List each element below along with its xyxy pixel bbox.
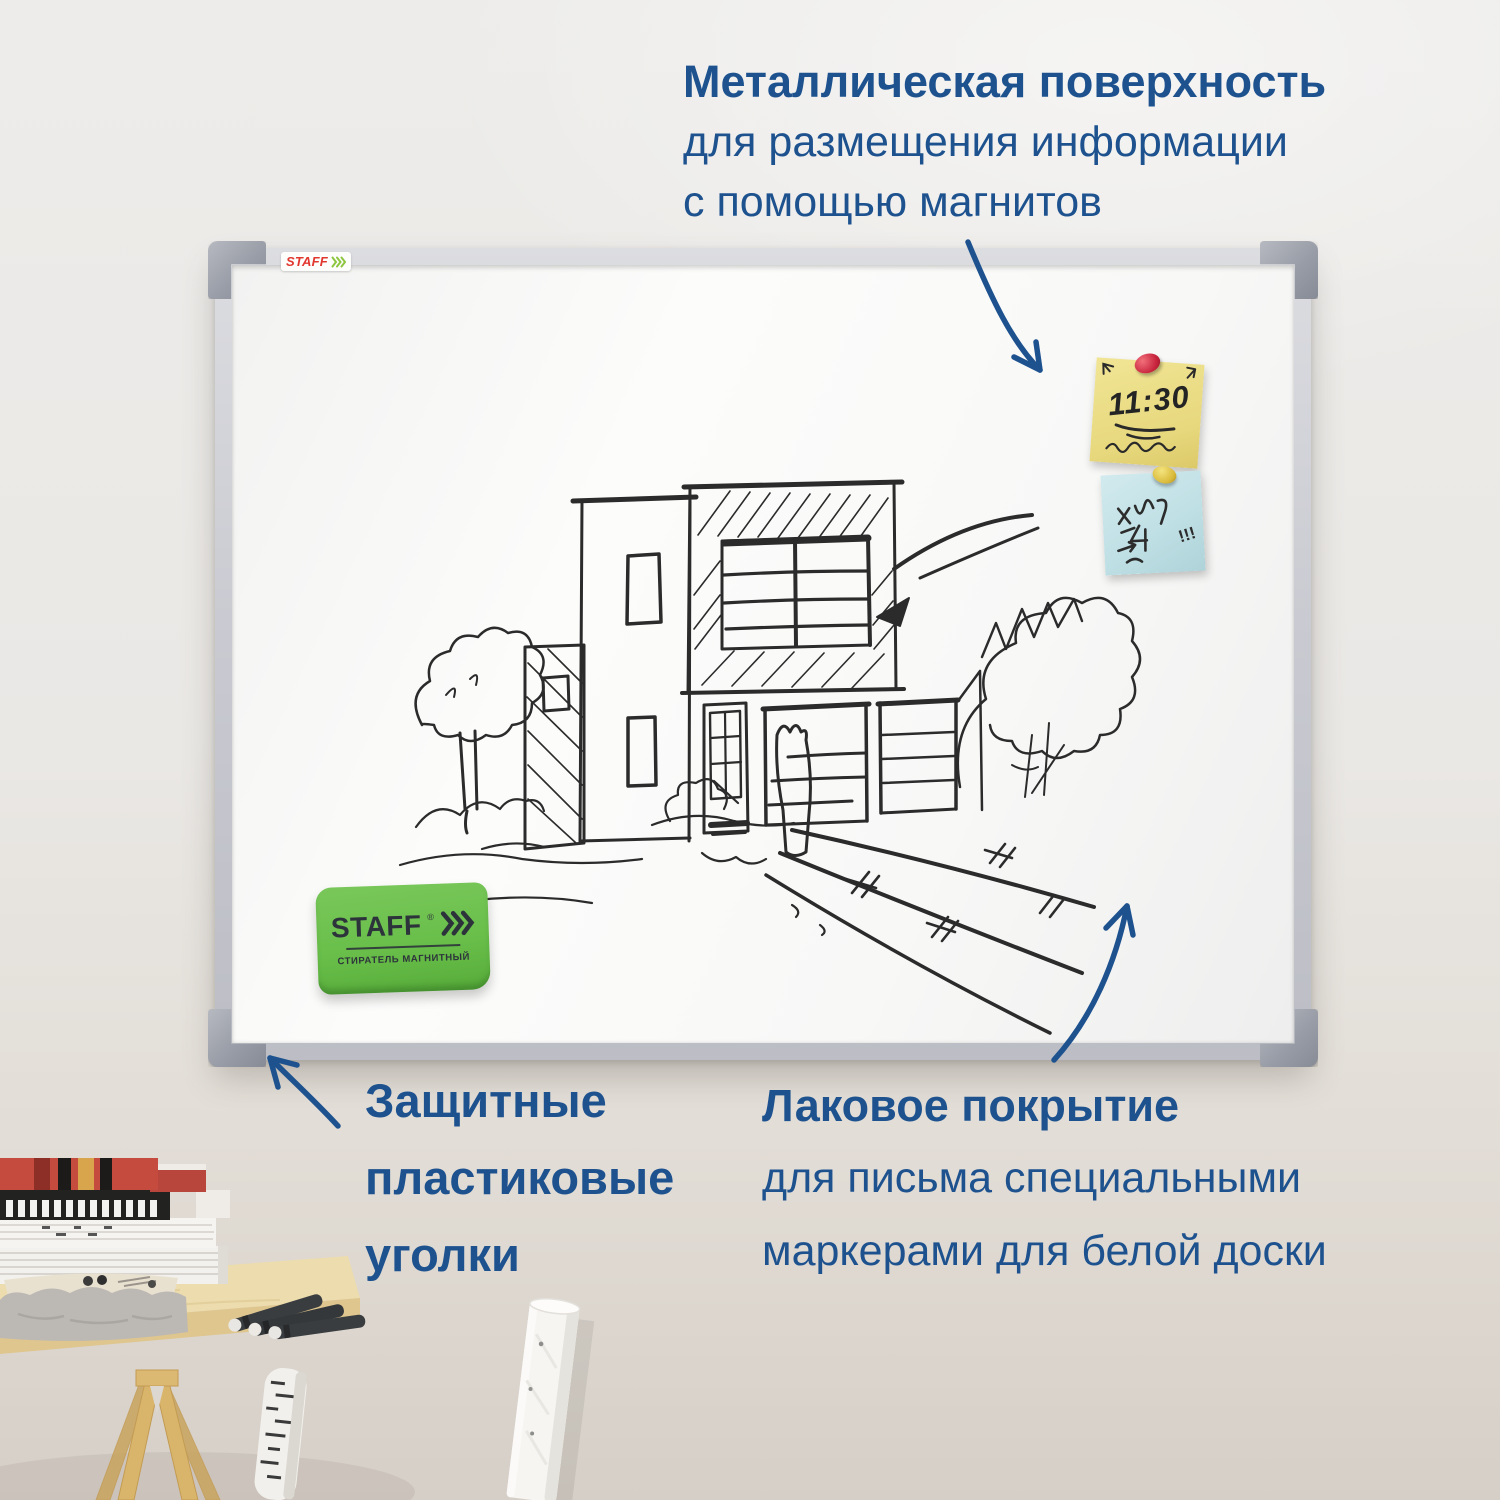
caption-line: уголки [365,1216,674,1293]
pencil-case [0,1273,188,1340]
sticky-note-yellow: 11:30 [1090,357,1205,468]
sticker-brand-text: STAFF [286,254,328,269]
garage-doors-sketch [763,671,982,825]
triple-chevron-icon [331,256,346,268]
tree-right-sketch [958,598,1140,797]
house-door-sketch [704,703,748,834]
whiteboard: 11:30 !!! [215,248,1311,1060]
caption-magnetic-surface: Металлическая поверхность для размещения… [683,52,1326,232]
product-photo-stage: 11:30 !!! [0,0,1500,1500]
whiteboard-surface: 11:30 !!! [232,265,1294,1043]
triple-chevron-icon [440,910,475,937]
staff-frame-sticker: STAFF [281,252,351,271]
caption-title: Металлическая поверхность [683,52,1326,112]
house-left-block-sketch [525,645,584,849]
rolled-poster [506,1296,596,1500]
caption-line: для письма специальными [762,1142,1327,1215]
eraser-brand-text: STAFF [330,911,422,942]
sticky-note-blue: !!! [1100,470,1205,575]
driveway-sketch [766,830,1094,1033]
curved-arrow-to-corner-icon [270,1058,338,1126]
figure-sketch [777,726,811,856]
caption-line: Защитные [365,1062,674,1139]
caption-line: с помощью магнитов [683,172,1326,232]
caption-lacquer-coating: Лаковое покрытие для письма специальными… [762,1069,1327,1288]
sketch-arrow [877,515,1038,626]
registered-mark: ® [427,912,434,922]
eraser-label-text: СТИРАТЕЛЬ МАГНИТНЫЙ [337,952,470,968]
house-center-block-sketch [682,482,904,693]
eraser-divider [346,944,460,950]
caption-title: Лаковое покрытие [762,1069,1327,1142]
caption-protective-corners: Защитные пластиковые уголки [365,1062,674,1293]
magnetic-eraser: STAFF® СТИРАТЕЛЬ МАГНИТНЫЙ [315,882,491,995]
caption-line: пластиковые [365,1139,674,1216]
caption-line: для размещения информации [683,112,1326,172]
book-stack [0,1158,230,1284]
caption-line: маркерами для белой доски [762,1215,1327,1288]
